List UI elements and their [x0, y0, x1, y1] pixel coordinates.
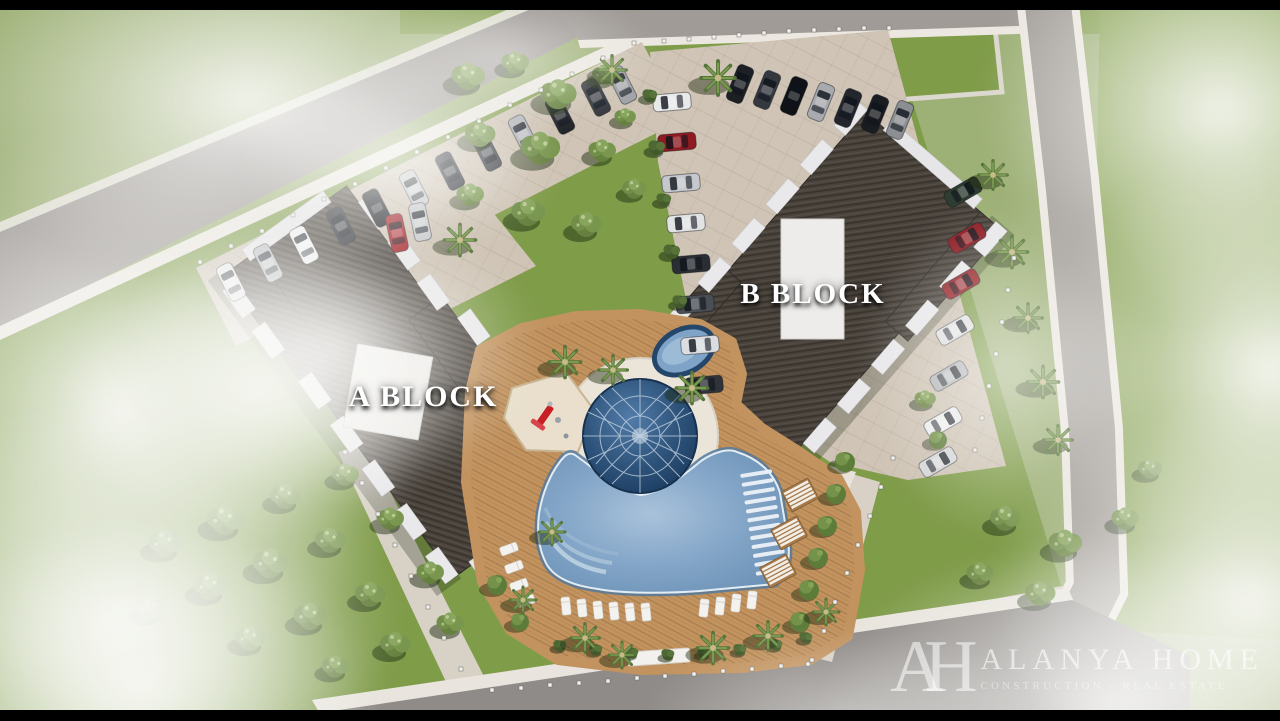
block-b-label: B BLOCK [738, 278, 888, 311]
brand-monogram: AH [890, 636, 980, 699]
brand-watermark: AH ALANYA HOME CONSTRUCTION - REAL ESTAT… [890, 636, 1264, 699]
block-a-label: A BLOCK [346, 380, 501, 414]
brand-subtitle: CONSTRUCTION - REAL ESTATE [981, 680, 1265, 692]
brand-title: ALANYA HOME [981, 643, 1265, 677]
site-plan-render: A BLOCK B BLOCK AH ALANYA HOME CONSTRUCT… [0, 0, 1280, 721]
scene-svg [0, 0, 1280, 721]
letterbox-bottom [0, 710, 1280, 721]
letterbox-top [0, 0, 1280, 10]
